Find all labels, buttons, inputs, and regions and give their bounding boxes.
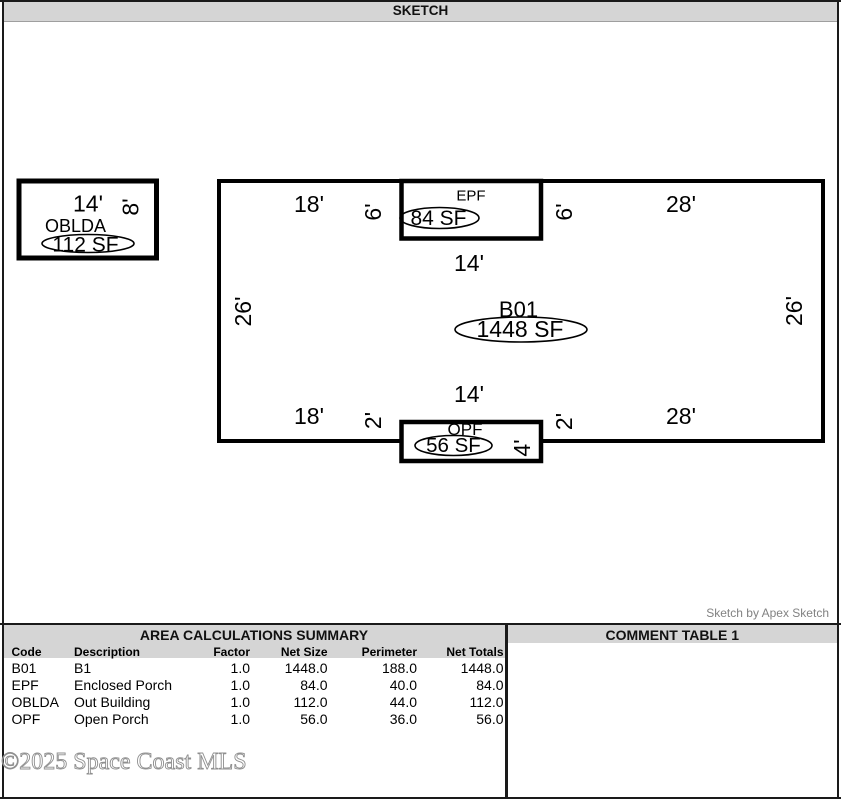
svg-text:14': 14' xyxy=(73,191,103,217)
svg-text:EPF: EPF xyxy=(456,188,485,205)
svg-text:26': 26' xyxy=(230,297,256,327)
svg-text:6': 6' xyxy=(360,203,386,220)
svg-text:28': 28' xyxy=(666,403,696,429)
svg-text:18': 18' xyxy=(294,403,324,429)
svg-text:6': 6' xyxy=(551,203,577,220)
svg-text:2': 2' xyxy=(551,413,577,430)
svg-text:56 SF: 56 SF xyxy=(426,434,481,457)
svg-text:14': 14' xyxy=(454,381,484,407)
svg-text:8': 8' xyxy=(118,198,144,215)
svg-text:2': 2' xyxy=(360,412,386,429)
svg-text:112 SF: 112 SF xyxy=(52,234,118,257)
svg-text:26': 26' xyxy=(781,296,807,326)
svg-text:14': 14' xyxy=(454,250,484,276)
svg-text:4': 4' xyxy=(509,439,535,456)
svg-text:28': 28' xyxy=(666,191,696,217)
svg-text:18': 18' xyxy=(294,191,324,217)
svg-text:84 SF: 84 SF xyxy=(410,207,466,230)
svg-text:1448 SF: 1448 SF xyxy=(477,316,564,342)
